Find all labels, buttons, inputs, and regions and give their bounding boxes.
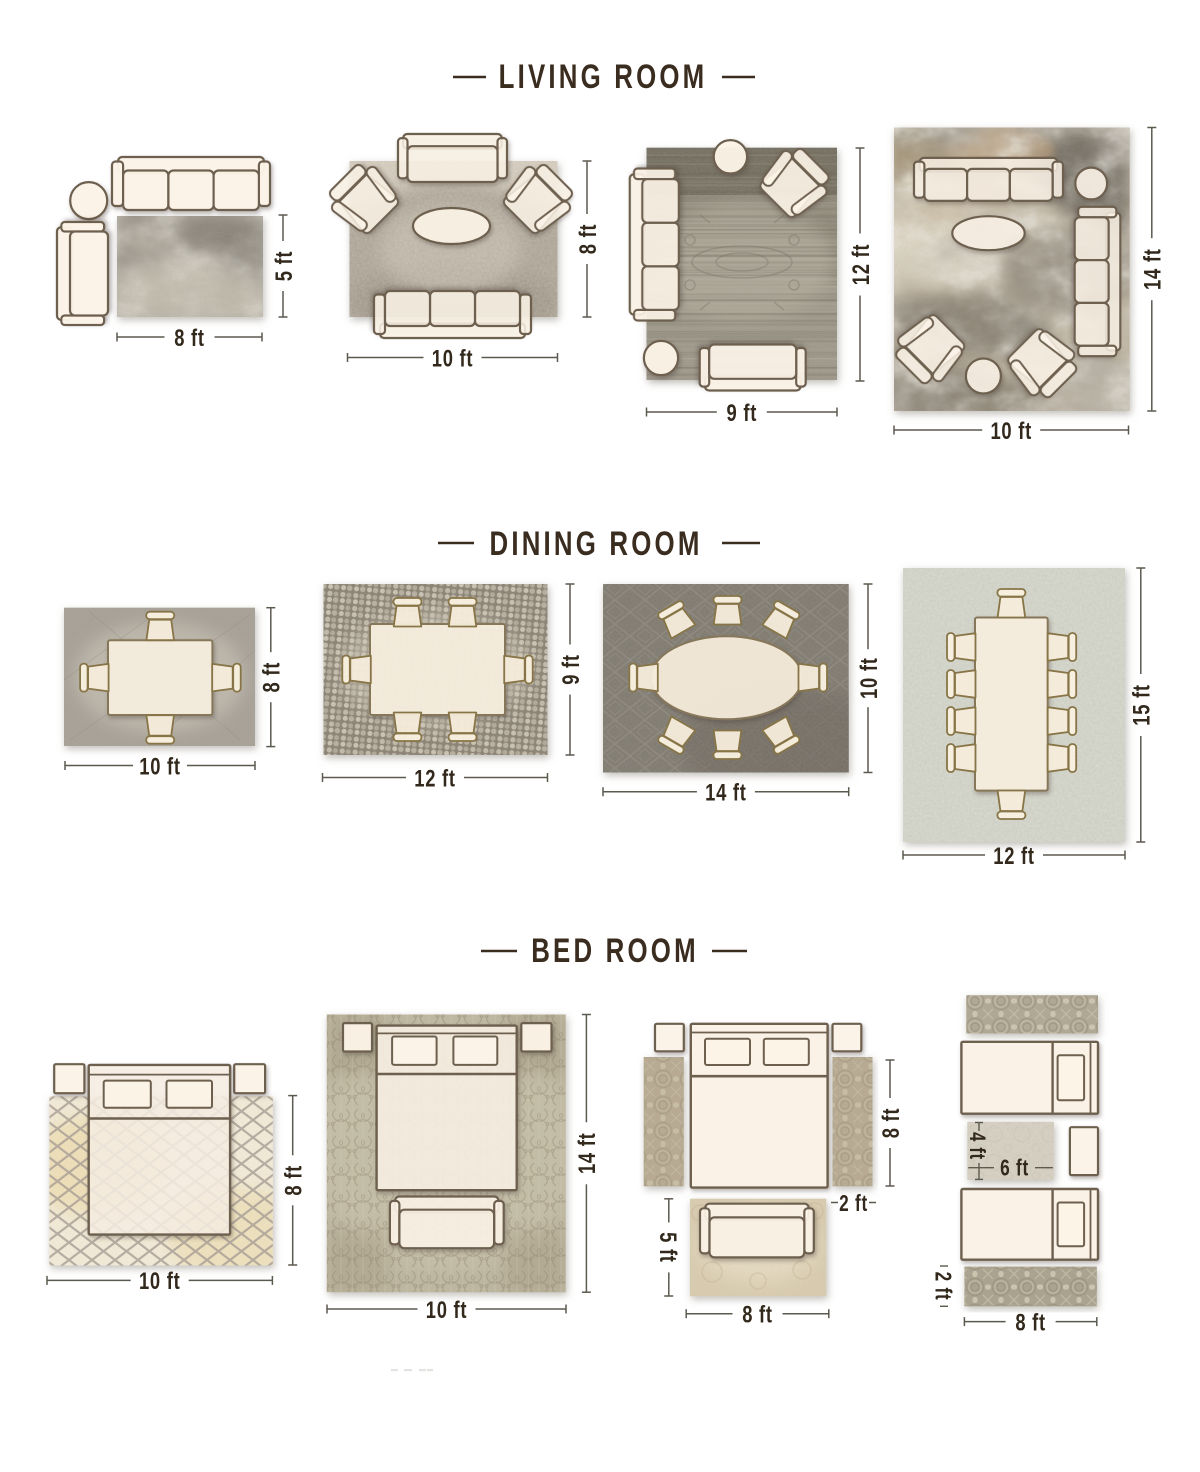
svg-text:8 ft: 8 ft [257,662,285,693]
svg-text:14 ft: 14 ft [573,1133,601,1175]
svg-text:15 ft: 15 ft [1127,684,1155,726]
svg-text:9 ft: 9 ft [727,398,758,426]
svg-text:8 ft: 8 ft [279,1165,307,1196]
svg-text:DINING ROOM: DINING ROOM [489,526,702,563]
svg-text:8 ft: 8 ft [742,1300,773,1328]
svg-text:LIVING ROOM: LIVING ROOM [499,59,708,96]
svg-text:10 ft: 10 ft [139,1267,181,1295]
svg-text:10 ft: 10 ft [854,657,882,699]
svg-text:8 ft: 8 ft [876,1108,904,1139]
svg-text:4 ft: 4 ft [964,1132,989,1160]
svg-text:5 ft: 5 ft [269,251,297,282]
svg-text:8 ft: 8 ft [174,323,205,351]
svg-text:9 ft: 9 ft [556,654,584,685]
svg-text:5 ft: 5 ft [654,1232,682,1263]
svg-text:6 ft: 6 ft [1000,1156,1029,1181]
svg-text:2 ft: 2 ft [839,1192,868,1217]
svg-text:10 ft: 10 ft [139,752,181,780]
svg-text:14 ft: 14 ft [1138,248,1166,290]
svg-text:2 ft: 2 ft [930,1272,955,1301]
svg-text:12 ft: 12 ft [414,764,456,792]
svg-text:BED ROOM: BED ROOM [531,933,699,970]
svg-text:12 ft: 12 ft [846,244,874,286]
svg-text:8 ft: 8 ft [1015,1308,1046,1336]
svg-text:10 ft: 10 ft [426,1295,468,1323]
svg-text:8 ft: 8 ft [573,224,601,255]
svg-text:12 ft: 12 ft [993,841,1035,869]
svg-text:14 ft: 14 ft [705,778,747,806]
svg-text:10 ft: 10 ft [990,416,1032,444]
svg-text:10 ft: 10 ft [432,344,474,372]
